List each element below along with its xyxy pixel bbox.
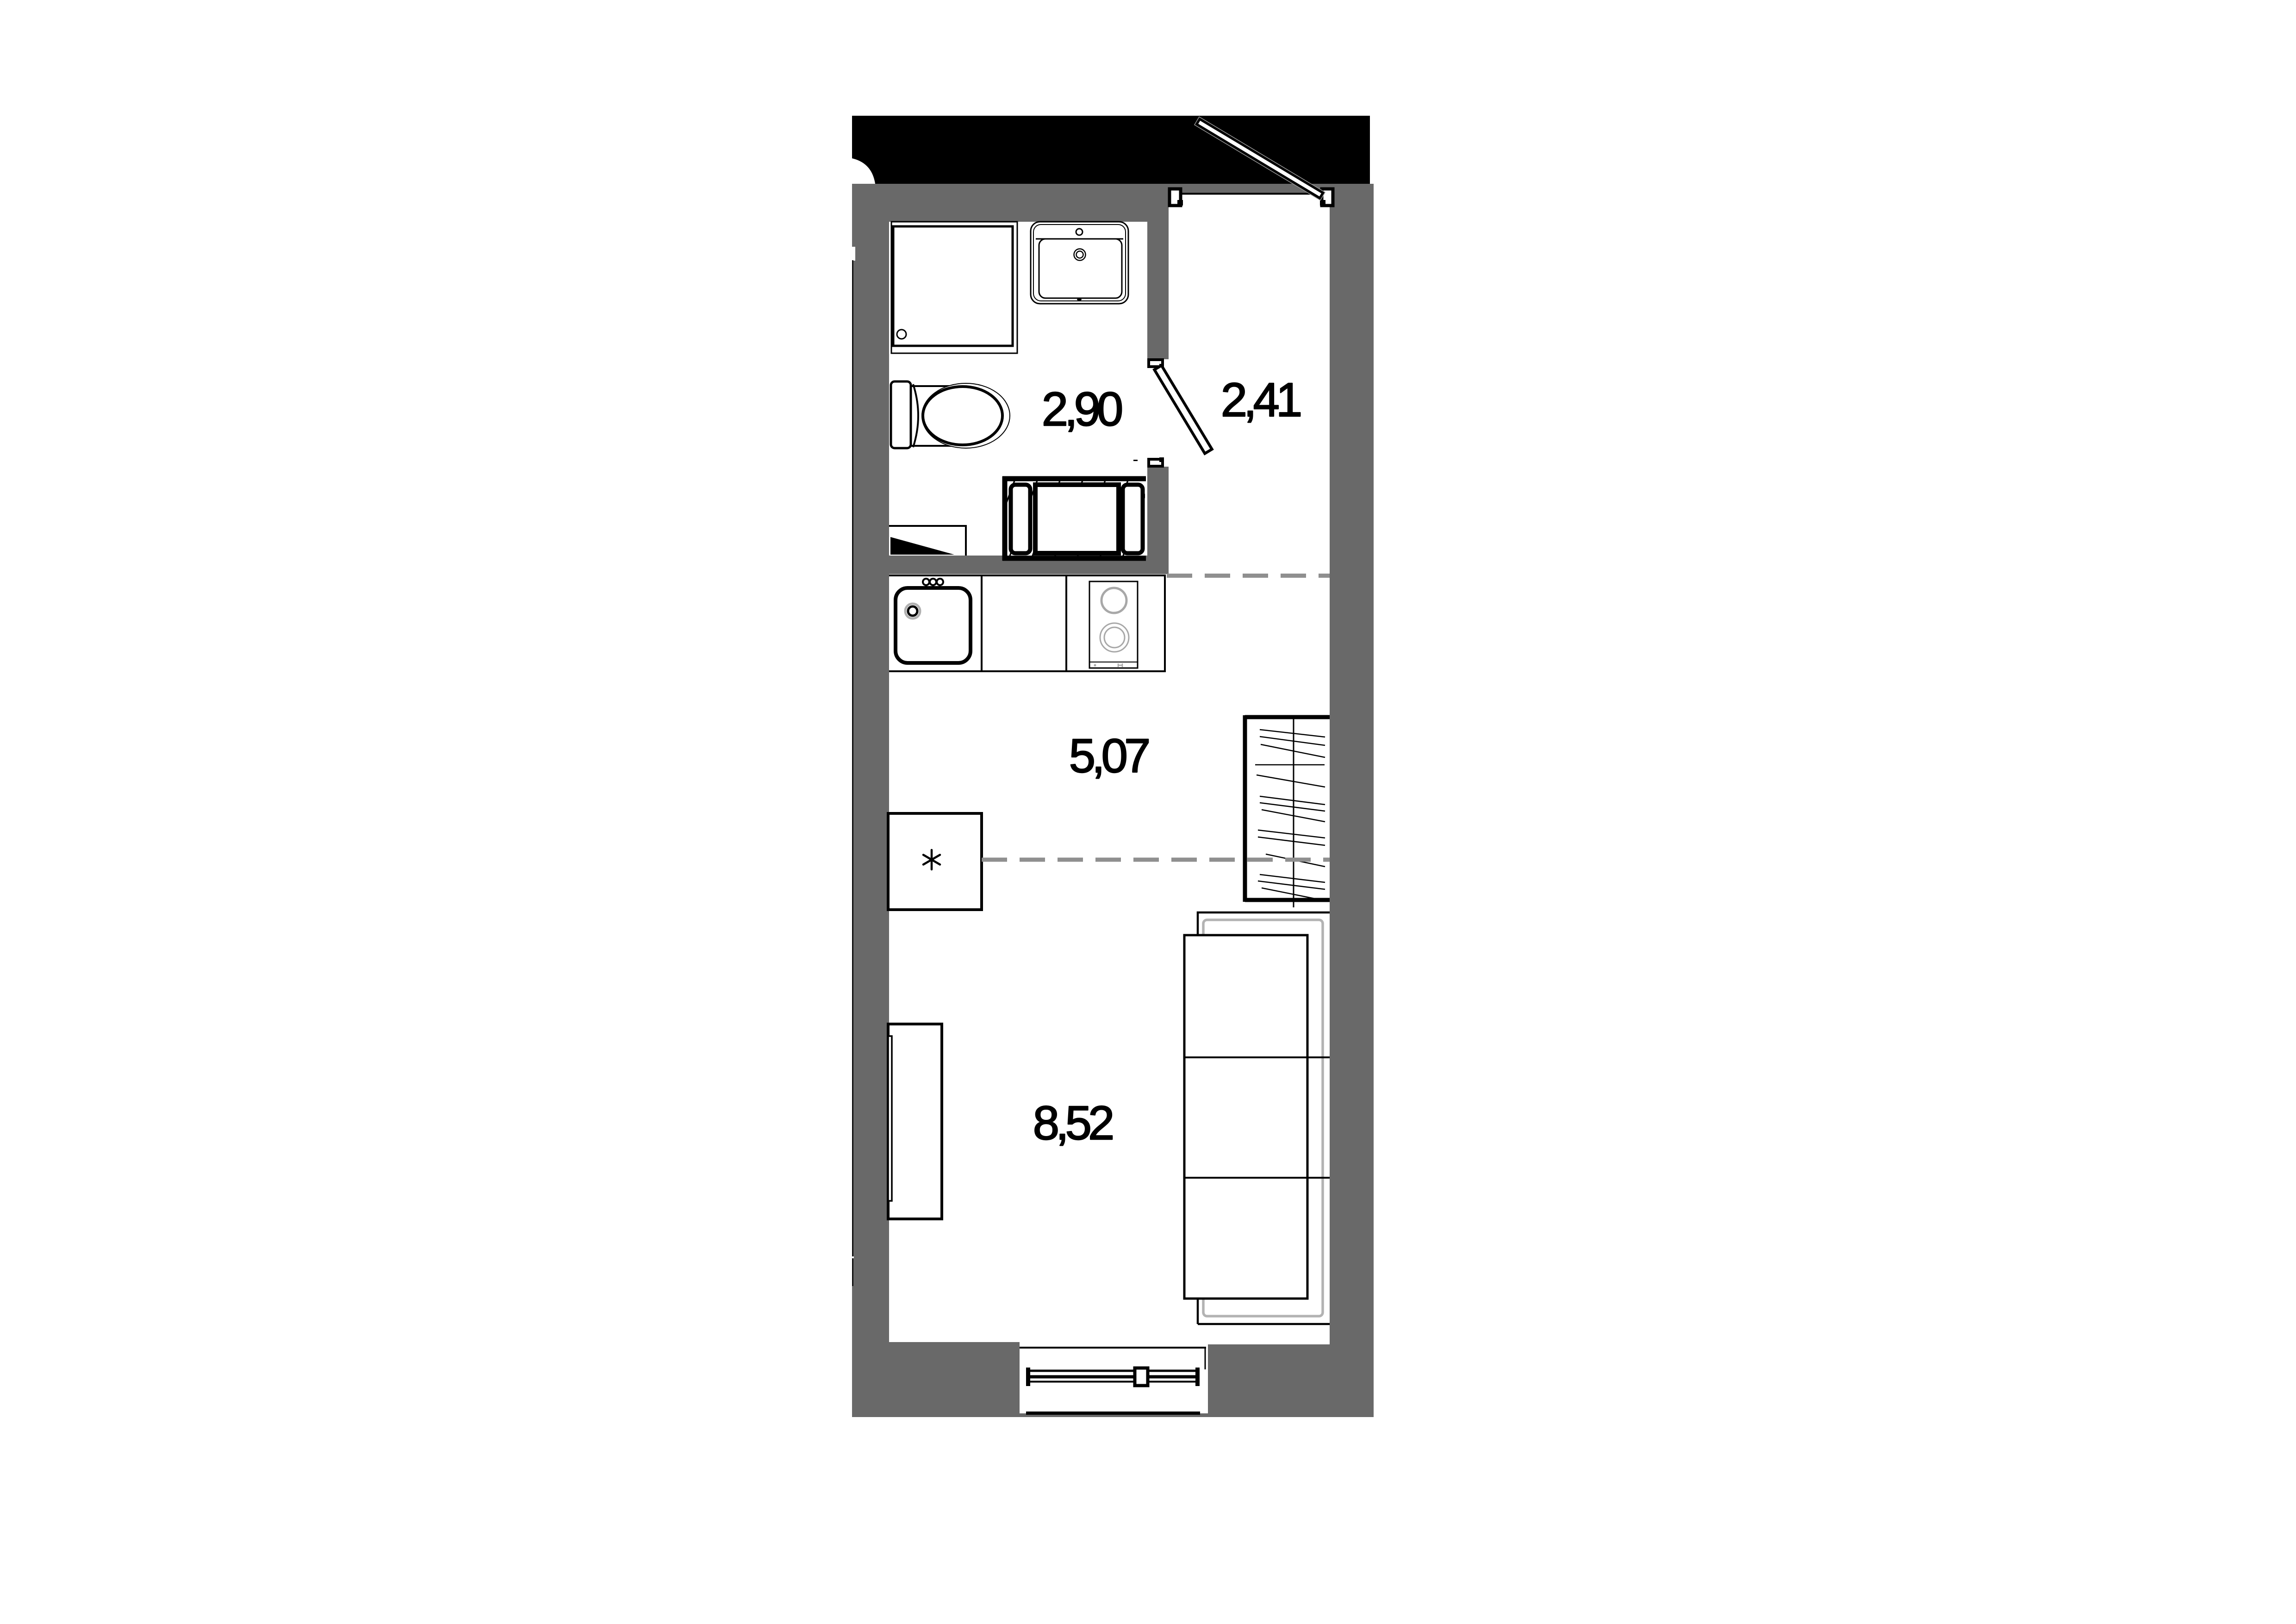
svg-text:5,07: 5,07 — [1069, 729, 1149, 782]
svg-text:2,90: 2,90 — [1042, 382, 1122, 436]
svg-text:2,41: 2,41 — [1221, 373, 1300, 426]
svg-text:8,52: 8,52 — [1033, 1096, 1113, 1149]
